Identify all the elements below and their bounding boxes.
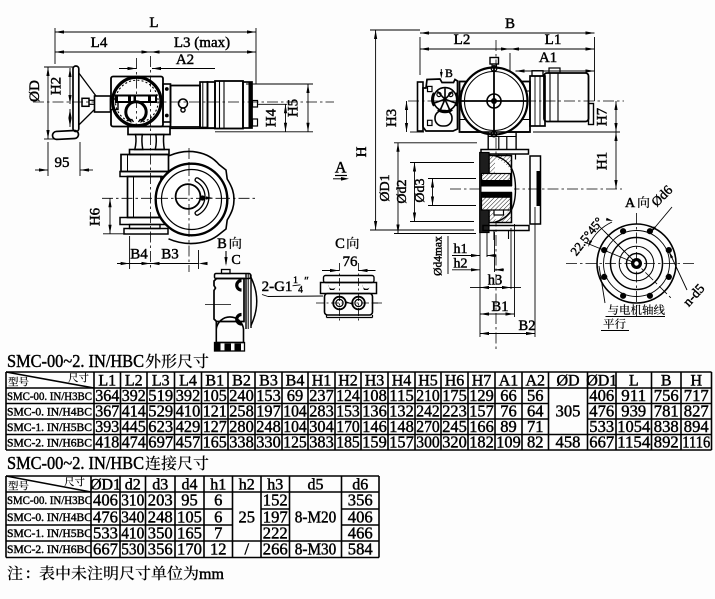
svg-text:L4: L4	[91, 35, 108, 51]
svg-text:A: A	[335, 160, 347, 177]
svg-text:SMC-0. IN/H4BC: SMC-0. IN/H4BC	[7, 405, 92, 419]
svg-text:182: 182	[469, 433, 494, 452]
svg-text:320: 320	[442, 433, 467, 452]
svg-text:d5: d5	[308, 477, 324, 494]
svg-text:L2: L2	[454, 32, 471, 48]
svg-text:ØD1: ØD1	[378, 174, 393, 201]
svg-text:B: B	[217, 236, 227, 252]
svg-text:697: 697	[148, 433, 173, 452]
svg-text:8-M20: 8-M20	[295, 507, 337, 526]
svg-text:95: 95	[55, 155, 70, 171]
svg-text:B2: B2	[519, 318, 536, 334]
svg-text:ØD: ØD	[556, 373, 579, 390]
svg-text:25: 25	[239, 507, 256, 526]
svg-text:338: 338	[229, 433, 254, 452]
svg-text:A2: A2	[176, 52, 194, 68]
svg-text:170: 170	[177, 539, 202, 558]
svg-text:/: /	[244, 539, 249, 558]
svg-text:SMC-00~2. IN/HBC: SMC-00~2. IN/HBC	[7, 453, 144, 473]
svg-text:584: 584	[348, 539, 373, 558]
svg-text:h1: h1	[454, 242, 468, 257]
svg-text:667: 667	[589, 433, 614, 452]
svg-text::: :	[26, 565, 30, 582]
svg-text:266: 266	[263, 539, 288, 558]
svg-text:SMC-00. IN/H3BC: SMC-00. IN/H3BC	[7, 493, 92, 507]
svg-text:159: 159	[362, 433, 387, 452]
svg-text:418: 418	[95, 433, 119, 452]
svg-text:SMC-0. IN/H4BC: SMC-0. IN/H4BC	[7, 510, 92, 524]
svg-text:12: 12	[210, 539, 227, 558]
svg-text:H: H	[354, 146, 370, 157]
svg-text:530: 530	[121, 539, 144, 558]
svg-text:1116: 1116	[682, 433, 710, 452]
svg-text:L: L	[149, 15, 158, 31]
svg-text:C: C	[231, 253, 240, 268]
svg-text:667: 667	[93, 539, 118, 558]
svg-text:383: 383	[309, 433, 334, 452]
svg-text:h2: h2	[454, 257, 468, 272]
svg-text:H1: H1	[595, 152, 611, 170]
svg-text:Ød4max: Ød4max	[433, 236, 445, 276]
svg-text:300: 300	[416, 433, 440, 452]
svg-text:458: 458	[556, 433, 581, 452]
svg-text:H7: H7	[595, 107, 611, 126]
svg-text:185: 185	[336, 433, 360, 452]
svg-text:ØD: ØD	[27, 80, 43, 102]
svg-text:L1: L1	[545, 32, 562, 48]
svg-text:Ød2: Ød2	[395, 179, 410, 203]
svg-text:1: 1	[293, 276, 298, 286]
svg-text:330: 330	[256, 433, 281, 452]
svg-text:2-G1: 2-G1	[262, 279, 293, 295]
svg-text:C: C	[335, 236, 345, 252]
svg-text:125: 125	[283, 433, 307, 452]
svg-text:SMC-00. IN/H3BC: SMC-00. IN/H3BC	[7, 389, 92, 403]
svg-text:h3: h3	[488, 273, 503, 289]
svg-text:SMC-1. IN/H5BC: SMC-1. IN/H5BC	[7, 526, 92, 540]
svg-text:H3: H3	[384, 109, 400, 127]
svg-text:H6: H6	[88, 207, 104, 226]
svg-text:109: 109	[496, 433, 521, 452]
svg-text:B: B	[505, 16, 515, 32]
svg-text:L3 (max): L3 (max)	[174, 35, 230, 51]
svg-text:H5: H5	[286, 99, 302, 117]
svg-text:4: 4	[298, 286, 303, 296]
svg-text:B4: B4	[130, 247, 148, 263]
svg-text:SMC-1. IN/H5BC: SMC-1. IN/H5BC	[7, 420, 92, 434]
svg-text:457: 457	[176, 433, 201, 452]
svg-text:SMC-00~2. IN/HBC: SMC-00~2. IN/HBC	[7, 351, 144, 371]
svg-text:B: B	[445, 68, 453, 80]
svg-text:″: ″	[304, 275, 309, 287]
svg-text:mm: mm	[199, 566, 224, 583]
svg-text:157: 157	[389, 433, 414, 452]
svg-text:SMC-2. IN/H6BC: SMC-2. IN/H6BC	[7, 542, 92, 556]
svg-text:474: 474	[122, 433, 146, 452]
svg-text:165: 165	[203, 433, 227, 452]
svg-text:SMC-2. IN/H6BC: SMC-2. IN/H6BC	[7, 436, 92, 450]
svg-text:H2: H2	[49, 77, 65, 95]
svg-text:76: 76	[343, 254, 359, 270]
svg-text:1154: 1154	[617, 433, 650, 452]
svg-text:Ød3: Ød3	[413, 178, 428, 202]
svg-text:892: 892	[654, 433, 679, 452]
svg-text:H4: H4	[264, 108, 280, 127]
svg-text:8-M30: 8-M30	[295, 539, 337, 558]
svg-text:356: 356	[148, 539, 173, 558]
svg-text:305: 305	[556, 402, 581, 421]
svg-text:A1: A1	[539, 50, 557, 66]
svg-text:A: A	[625, 196, 636, 211]
svg-text:82: 82	[527, 433, 544, 452]
svg-text:h2: h2	[239, 477, 255, 494]
svg-text:B3: B3	[161, 247, 179, 263]
